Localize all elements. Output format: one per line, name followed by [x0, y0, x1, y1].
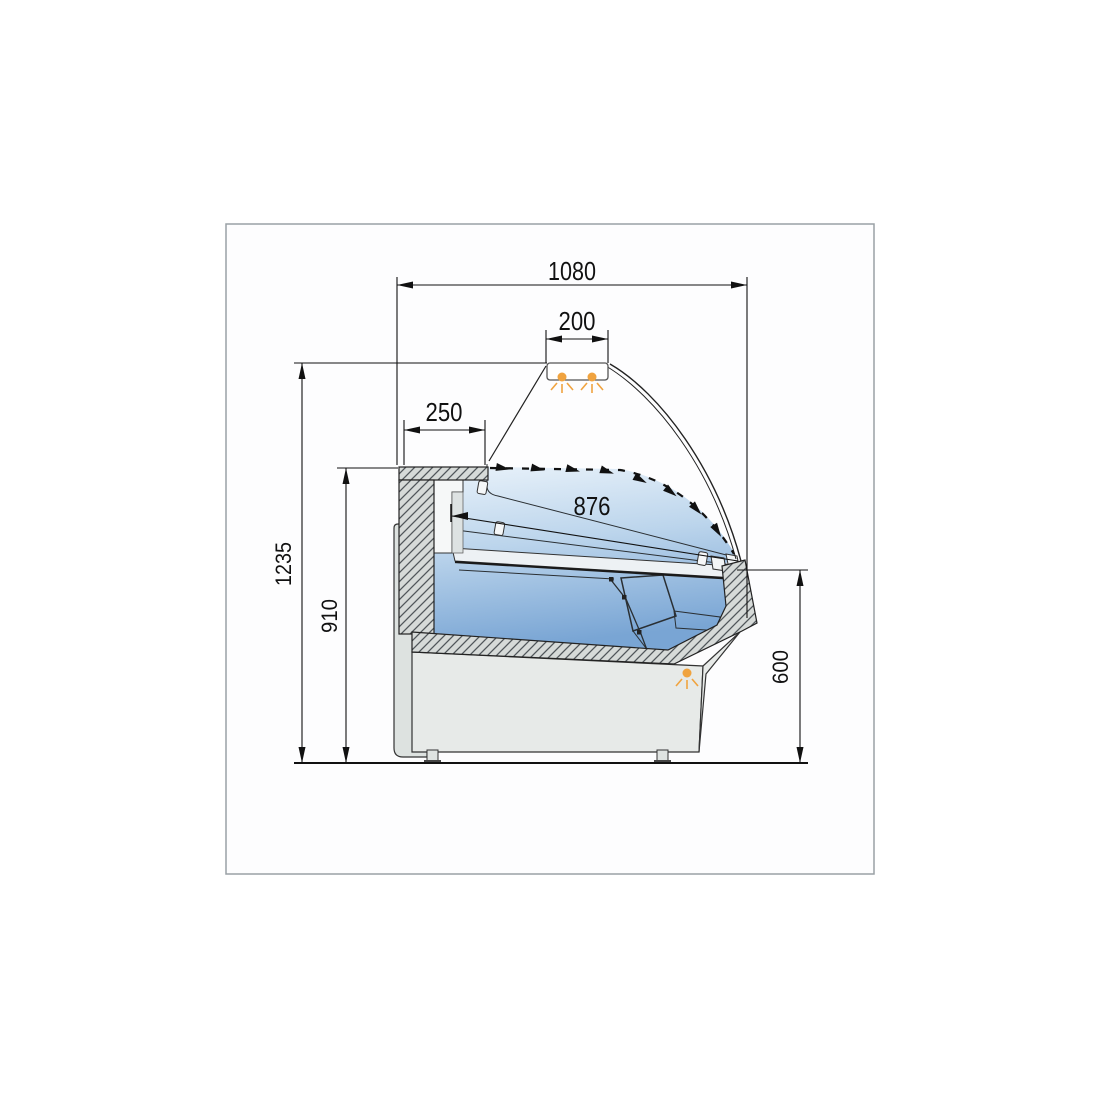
shelf-clip: [477, 480, 488, 494]
shelf-clip: [697, 551, 708, 565]
counter-top-insulation: [399, 467, 488, 480]
canopy-lamp-icon: [588, 373, 597, 382]
front-foot: [657, 750, 668, 761]
dim-label-front-sill-height: 600: [768, 650, 793, 684]
bracket-node: [609, 577, 614, 582]
technical-drawing-display-case-section: 1080 200 250 876: [0, 0, 1100, 1100]
dim-label-display-opening: 876: [574, 491, 611, 521]
bracket-node: [637, 630, 642, 635]
page: 1080 200 250 876: [0, 0, 1100, 1100]
dim-label-canopy-width: 200: [559, 306, 596, 336]
front-lamp-icon: [683, 669, 692, 678]
rear-wall-insulation: [399, 480, 434, 634]
dim-label-overall-height: 1235: [271, 542, 296, 586]
rear-inner-liner: [452, 492, 463, 553]
rear-foot: [427, 750, 438, 761]
dim-label-counter-height: 910: [317, 599, 342, 633]
bracket-node: [622, 595, 627, 600]
dim-label-rear-counter-depth: 250: [426, 397, 463, 427]
canopy-lamp-icon: [558, 373, 567, 382]
lamp-canopy: [547, 363, 608, 380]
base-cabinet-front: [412, 652, 703, 752]
dim-label-overall-width: 1080: [548, 256, 596, 286]
